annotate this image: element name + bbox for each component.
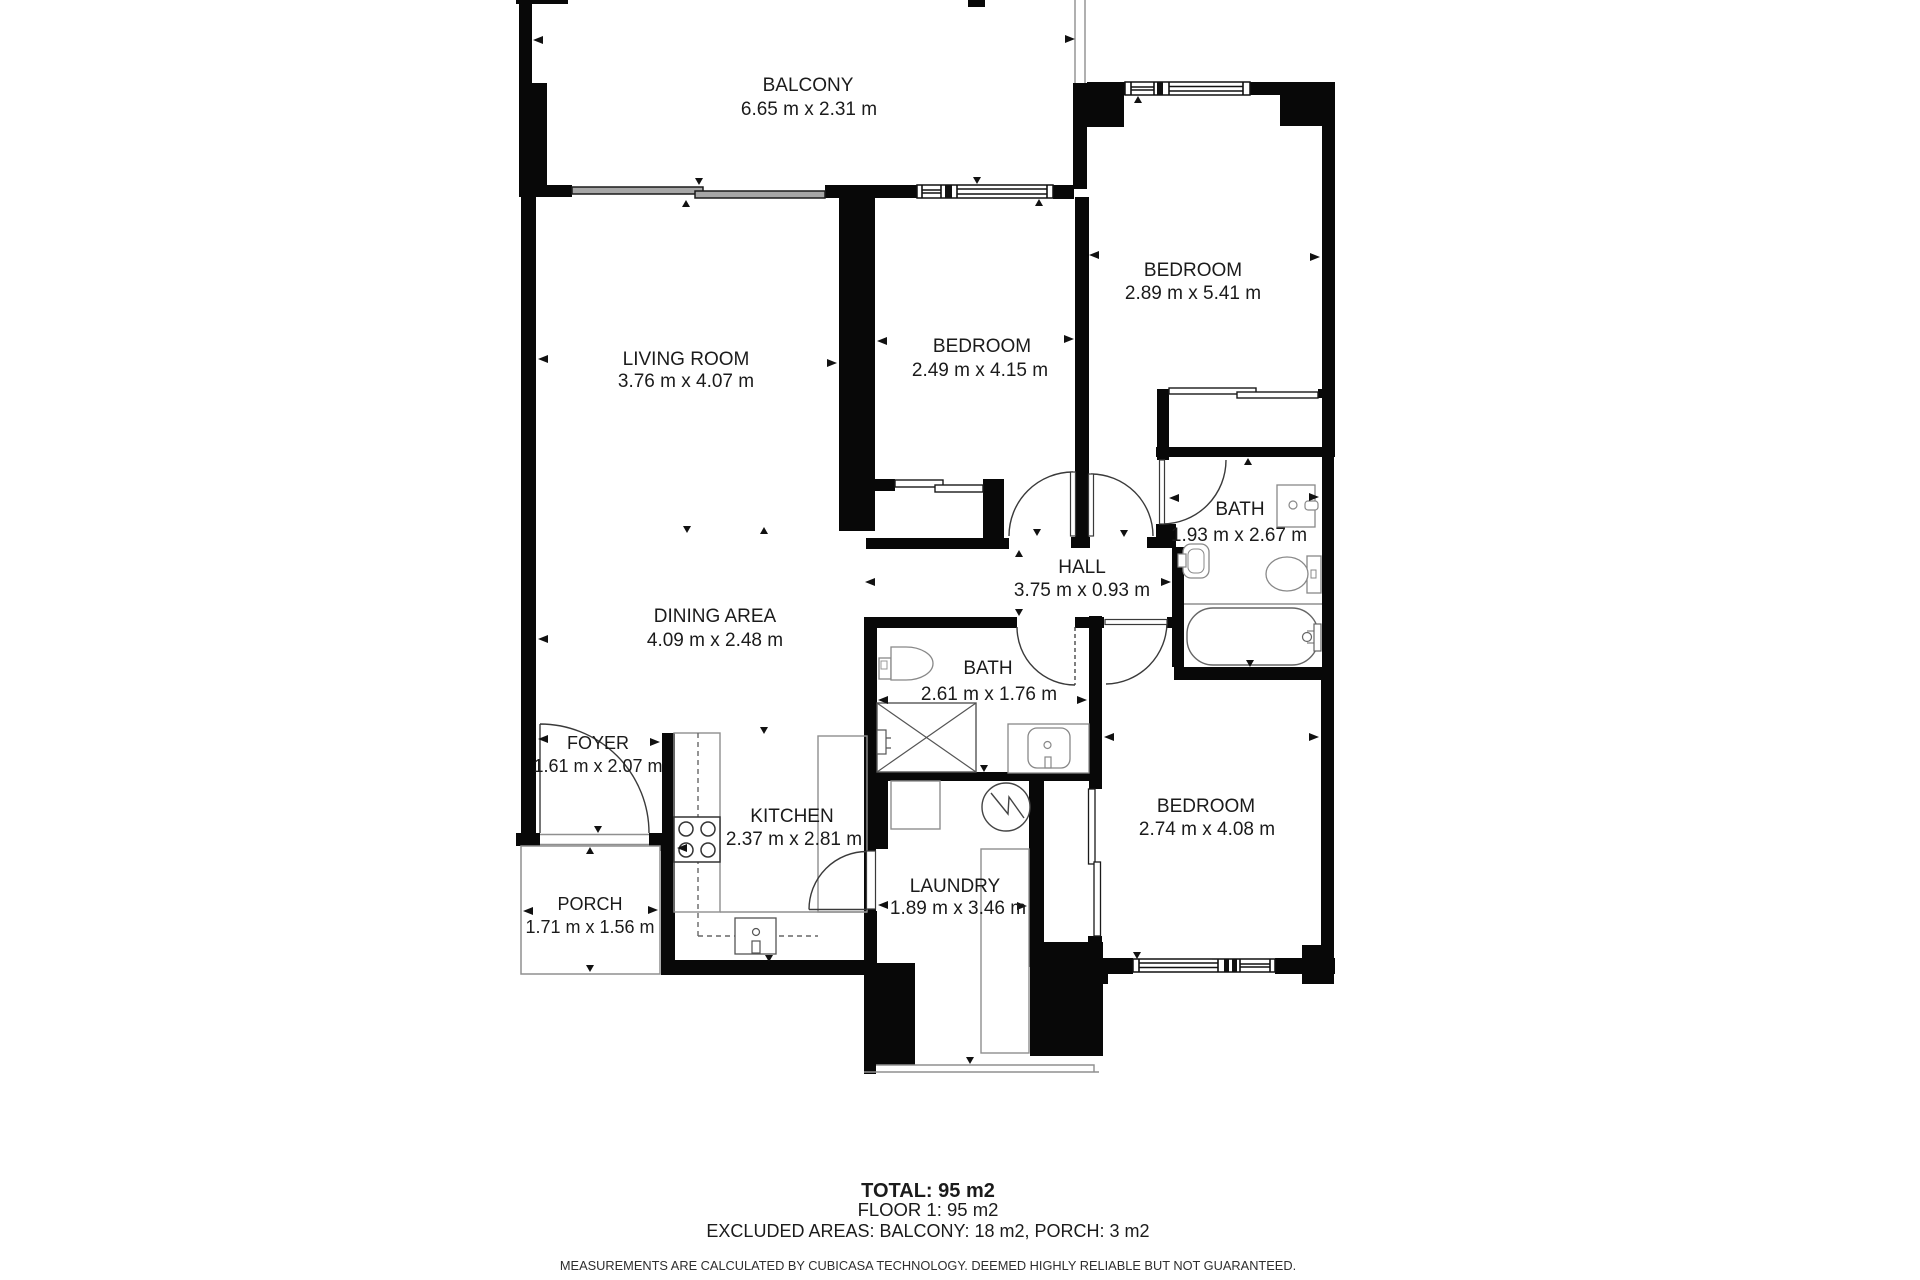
svg-text:1.61 m x 2.07 m: 1.61 m x 2.07 m <box>533 756 662 776</box>
svg-text:DINING AREA: DINING AREA <box>654 606 777 627</box>
svg-text:KITCHEN: KITCHEN <box>750 806 833 827</box>
svg-text:1.89 m x 3.46 m: 1.89 m x 3.46 m <box>890 898 1026 919</box>
svg-text:BEDROOM: BEDROOM <box>1144 260 1242 281</box>
svg-text:1.93 m x 2.67 m: 1.93 m x 2.67 m <box>1171 525 1307 546</box>
svg-text:HALL: HALL <box>1058 557 1106 578</box>
svg-text:2.89 m x 5.41 m: 2.89 m x 5.41 m <box>1125 283 1261 304</box>
svg-text:3.76 m x 4.07 m: 3.76 m x 4.07 m <box>618 371 754 392</box>
svg-text:LAUNDRY: LAUNDRY <box>910 876 1001 897</box>
svg-text:EXCLUDED AREAS: BALCONY: 18 m2: EXCLUDED AREAS: BALCONY: 18 m2, PORCH: 3… <box>706 1221 1149 1241</box>
svg-text:1.71 m x 1.56 m: 1.71 m x 1.56 m <box>525 917 654 937</box>
svg-text:BEDROOM: BEDROOM <box>1157 796 1255 817</box>
svg-text:LIVING ROOM: LIVING ROOM <box>623 349 750 370</box>
svg-text:6.65 m x 2.31 m: 6.65 m x 2.31 m <box>741 99 877 120</box>
svg-text:2.61 m x 1.76 m: 2.61 m x 1.76 m <box>921 684 1057 705</box>
svg-text:BATH: BATH <box>963 658 1012 679</box>
svg-text:MEASUREMENTS ARE CALCULATED BY: MEASUREMENTS ARE CALCULATED BY CUBICASA … <box>560 1258 1296 1273</box>
svg-text:2.74 m x 4.08 m: 2.74 m x 4.08 m <box>1139 819 1275 840</box>
svg-text:2.37 m x 2.81 m: 2.37 m x 2.81 m <box>726 829 862 850</box>
svg-text:3.75 m x 0.93 m: 3.75 m x 0.93 m <box>1014 580 1150 601</box>
svg-text:FOYER: FOYER <box>567 733 629 753</box>
svg-text:2.49 m x 4.15 m: 2.49 m x 4.15 m <box>912 360 1048 381</box>
svg-text:FLOOR 1: 95 m2: FLOOR 1: 95 m2 <box>858 1199 999 1220</box>
svg-text:4.09 m x 2.48 m: 4.09 m x 2.48 m <box>647 630 783 651</box>
svg-text:PORCH: PORCH <box>557 894 622 914</box>
svg-text:BATH: BATH <box>1215 499 1264 520</box>
svg-text:BEDROOM: BEDROOM <box>933 336 1031 357</box>
svg-text:BALCONY: BALCONY <box>763 75 854 96</box>
